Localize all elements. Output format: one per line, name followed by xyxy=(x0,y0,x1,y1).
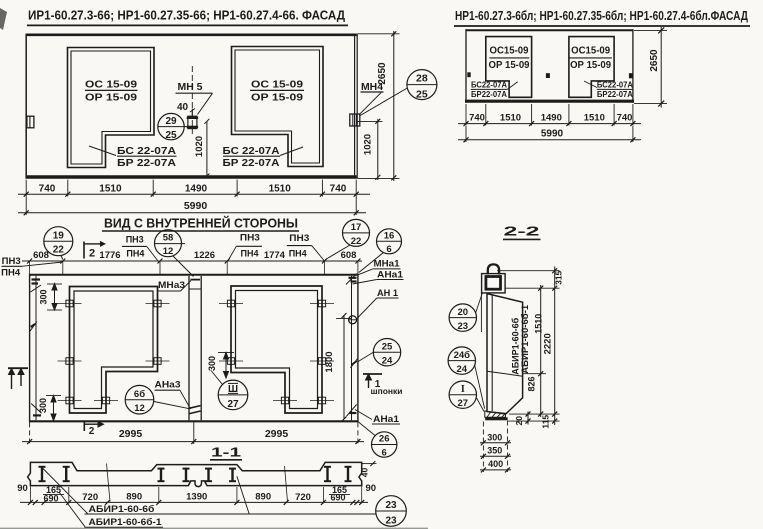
svg-text:90: 90 xyxy=(17,483,28,494)
svg-text:1490: 1490 xyxy=(541,112,562,123)
svg-text:1490: 1490 xyxy=(185,184,208,195)
svg-text:МНа3: МНа3 xyxy=(158,280,185,291)
svg-text:5990: 5990 xyxy=(184,200,208,212)
svg-text:2995: 2995 xyxy=(119,428,143,440)
svg-text:58: 58 xyxy=(163,232,174,243)
svg-text:740: 740 xyxy=(469,112,485,123)
svg-text:24: 24 xyxy=(457,364,468,375)
svg-text:МН 5: МН 5 xyxy=(178,81,203,93)
svg-text:740: 740 xyxy=(330,184,347,195)
svg-text:400: 400 xyxy=(488,459,503,469)
svg-text:ОС 15-09: ОС 15-09 xyxy=(85,79,137,91)
svg-text:1800: 1800 xyxy=(324,351,335,372)
svg-text:АНа1: АНа1 xyxy=(373,414,399,424)
svg-text:2-2: 2-2 xyxy=(504,225,540,239)
svg-text:БС 22-07А: БС 22-07А xyxy=(117,146,176,157)
svg-text:740: 740 xyxy=(39,184,56,195)
svg-text:ОР 15-09: ОР 15-09 xyxy=(85,92,137,104)
svg-text:890: 890 xyxy=(126,492,142,503)
svg-text:1510: 1510 xyxy=(584,112,605,123)
svg-text:22: 22 xyxy=(351,236,362,247)
svg-text:АБИР1-60-6б-1: АБИР1-60-6б-1 xyxy=(89,517,163,528)
svg-text:20: 20 xyxy=(458,307,469,318)
svg-text:АН 1: АН 1 xyxy=(377,288,398,298)
svg-text:23: 23 xyxy=(458,321,469,332)
svg-text:5990: 5990 xyxy=(541,129,564,140)
svg-text:27: 27 xyxy=(227,399,239,410)
svg-text:2995: 2995 xyxy=(265,428,289,440)
svg-text:1510: 1510 xyxy=(500,112,521,123)
svg-text:ОС15-09: ОС15-09 xyxy=(490,46,529,57)
svg-text:22: 22 xyxy=(53,245,65,256)
svg-text:28: 28 xyxy=(416,73,428,85)
svg-text:1510: 1510 xyxy=(533,314,543,334)
svg-text:826: 826 xyxy=(526,376,536,391)
svg-text:25: 25 xyxy=(416,89,428,101)
svg-text:ПН4: ПН4 xyxy=(289,249,308,260)
svg-text:МНа1: МНа1 xyxy=(374,259,400,269)
svg-text:1-1: 1-1 xyxy=(211,446,241,460)
svg-text:АНа1: АНа1 xyxy=(377,269,403,279)
svg-text:ОС 15-09: ОС 15-09 xyxy=(251,79,303,91)
svg-text:ПН3: ПН3 xyxy=(126,235,144,246)
svg-text:ВИД С ВНУТРЕННЕЙ СТОРОНЫ: ВИД С ВНУТРЕННЕЙ СТОРОНЫ xyxy=(104,216,298,231)
svg-text:300: 300 xyxy=(39,289,49,304)
svg-text:Ш: Ш xyxy=(228,384,238,395)
svg-text:1510: 1510 xyxy=(269,184,292,195)
svg-text:24б: 24б xyxy=(454,350,471,361)
svg-text:25: 25 xyxy=(165,130,177,141)
svg-text:2: 2 xyxy=(89,426,95,437)
svg-text:2650: 2650 xyxy=(377,62,388,85)
svg-text:АБИР1-60-6б-1: АБИР1-60-6б-1 xyxy=(520,305,530,374)
svg-text:608: 608 xyxy=(33,250,49,261)
svg-text:6: 6 xyxy=(382,447,387,458)
svg-text:ПН4: ПН4 xyxy=(126,248,145,259)
svg-text:23: 23 xyxy=(385,516,397,527)
svg-text:115: 115 xyxy=(541,415,551,429)
svg-text:12: 12 xyxy=(134,403,145,414)
svg-text:25: 25 xyxy=(382,341,393,352)
svg-text:ПН3: ПН3 xyxy=(2,256,21,267)
svg-text:300: 300 xyxy=(38,398,48,413)
svg-text:608: 608 xyxy=(341,250,357,261)
svg-text:23: 23 xyxy=(385,500,397,511)
svg-text:40: 40 xyxy=(360,468,370,478)
svg-text:I: I xyxy=(461,384,465,395)
svg-text:ОР 15-09: ОР 15-09 xyxy=(570,60,611,71)
svg-text:6: 6 xyxy=(386,244,391,255)
svg-text:ОР 15-09: ОР 15-09 xyxy=(489,60,530,71)
svg-text:ОР 15-09: ОР 15-09 xyxy=(251,92,303,104)
svg-text:2220: 2220 xyxy=(542,333,553,354)
svg-text:1774: 1774 xyxy=(264,250,286,261)
svg-text:17: 17 xyxy=(351,222,362,233)
svg-text:ПН3: ПН3 xyxy=(289,233,309,244)
svg-text:АБИР1-60-6б: АБИР1-60-6б xyxy=(510,317,520,374)
svg-text:29: 29 xyxy=(165,116,177,127)
svg-text:1390: 1390 xyxy=(186,492,207,503)
svg-text:1226: 1226 xyxy=(194,250,215,261)
svg-text:740: 740 xyxy=(617,112,633,123)
svg-text:ПН4: ПН4 xyxy=(241,249,260,260)
svg-text:40: 40 xyxy=(177,102,189,113)
svg-text:ПН4: ПН4 xyxy=(1,268,21,279)
svg-text:ПН3: ПН3 xyxy=(240,232,260,243)
svg-text:16: 16 xyxy=(384,231,395,242)
svg-text:1776: 1776 xyxy=(99,250,120,261)
svg-text:ИР1-60.27.3-66; НР1-60.27.35-6: ИР1-60.27.3-66; НР1-60.27.35-66; НР1-60.… xyxy=(28,8,346,23)
svg-text:690: 690 xyxy=(330,493,345,503)
svg-text:БС 22-07А: БС 22-07А xyxy=(223,146,280,157)
svg-text:АНа3: АНа3 xyxy=(155,380,181,391)
svg-text:БР 22-07А: БР 22-07А xyxy=(223,158,280,169)
svg-text:НР1-60.27.3-6бл; НР1-60.27.35-: НР1-60.27.3-6бл; НР1-60.27.35-6бл; НР1-6… xyxy=(455,9,748,23)
svg-text:26: 26 xyxy=(379,434,390,445)
svg-text:шпонки: шпонки xyxy=(371,386,403,396)
svg-text:6б: 6б xyxy=(134,389,145,400)
svg-text:350: 350 xyxy=(487,446,502,456)
svg-text:19: 19 xyxy=(53,230,65,241)
svg-text:90: 90 xyxy=(366,483,377,494)
svg-text:890: 890 xyxy=(255,492,271,503)
svg-text:27: 27 xyxy=(458,398,469,409)
svg-text:720: 720 xyxy=(82,492,98,503)
svg-text:1020: 1020 xyxy=(194,136,205,157)
svg-text:300: 300 xyxy=(207,356,217,371)
svg-text:БР22-07А: БР22-07А xyxy=(597,89,633,99)
svg-text:690: 690 xyxy=(43,493,58,503)
svg-text:20: 20 xyxy=(514,416,524,426)
svg-text:БР22-07А: БР22-07А xyxy=(471,89,507,99)
svg-text:1510: 1510 xyxy=(99,184,122,195)
svg-text:БР 22-07А: БР 22-07А xyxy=(117,158,176,169)
svg-text:12: 12 xyxy=(163,246,174,257)
svg-text:1020: 1020 xyxy=(363,134,374,155)
svg-text:24: 24 xyxy=(382,355,393,366)
svg-text:720: 720 xyxy=(295,492,311,503)
svg-text:2: 2 xyxy=(89,248,95,260)
svg-text:ОС15-09: ОС15-09 xyxy=(571,46,610,57)
svg-text:2650: 2650 xyxy=(649,49,660,72)
svg-text:300: 300 xyxy=(487,433,502,443)
